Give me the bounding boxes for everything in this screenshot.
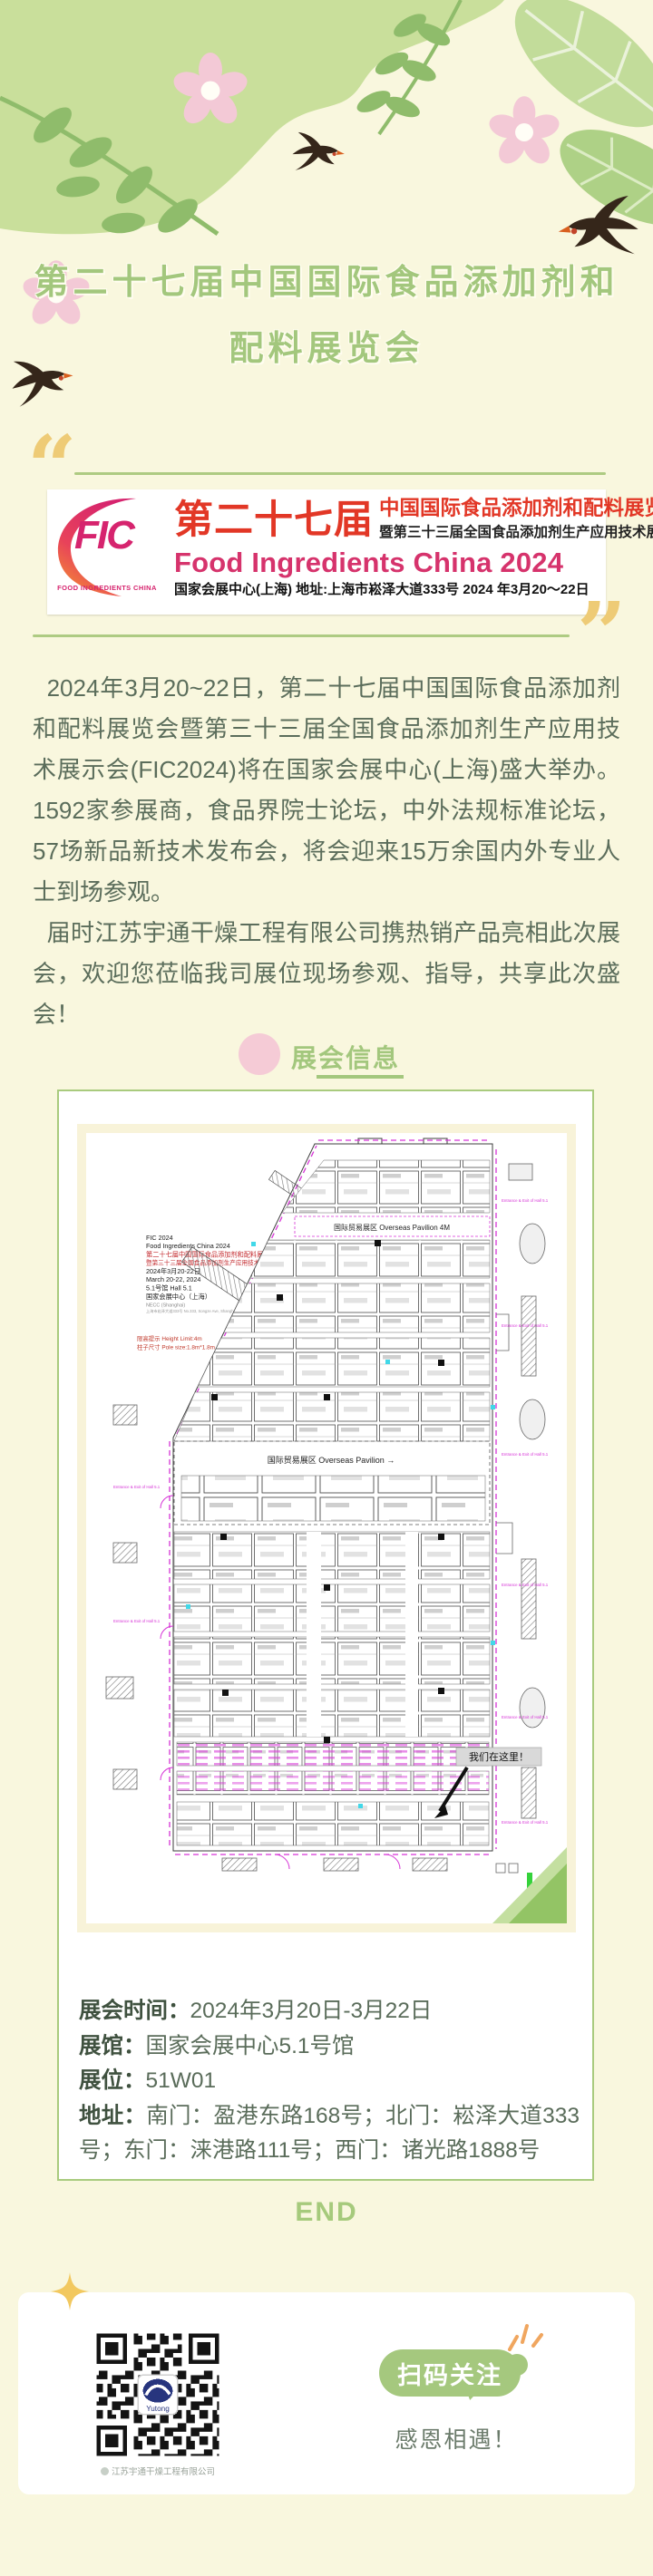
exhibition-details: 展会时间：2024年3月20日-3月22日 展馆：国家会展中心5.1号馆 展位：… (79, 1994, 580, 2169)
section-underline (317, 1075, 404, 1079)
end-label: END (0, 2197, 653, 2228)
detail-label: 展位： (79, 2068, 146, 2093)
page-title-line2: 配料展览会 (0, 320, 653, 370)
follow-button[interactable]: 扫码关注 (379, 2349, 521, 2397)
floor-plan: FIC 2024 Food Ingredients China 2024 第二十… (86, 1133, 567, 1923)
pavilion-label-mid: 国际贸易展区 Overseas Pavilion → (268, 1455, 395, 1465)
divider-line-bottom (33, 634, 570, 637)
entrance-label: Entrance & Exit of Hall 5.1 (113, 1485, 161, 1489)
banner-cn-title: 中国国际食品添加剂和配料展览会 (379, 495, 653, 522)
fic-banner: FIC FOOD INGREDIENTS CHINA 第二十七届 中国国际食品添… (47, 489, 606, 615)
detail-row-hall: 展馆：国家会展中心5.1号馆 (79, 2029, 580, 2065)
detail-value: 2024年3月20日-3月22日 (190, 1999, 433, 2023)
company-mini-logo (101, 2467, 109, 2475)
quote-close-icon: ” (577, 591, 627, 677)
qr-block: Yutong 江苏宇通干燥工程有限公司 (94, 2331, 221, 2477)
left-door-arcs (161, 1496, 173, 1780)
banner-en-title: Food Ingredients China 2024 (174, 546, 653, 580)
emphasis-dashes-icon (504, 2319, 544, 2355)
bottom-externals (222, 1855, 532, 1891)
plan-header-line: 第二十七届中国国际食品添加剂和配料展览会 (146, 1251, 277, 1259)
qr-logo-text: Yutong (146, 2405, 170, 2413)
intro-paragraph-2: 届时江苏宇通干燥工程有限公司携热销产品亮相此次展会，欢迎您莅临我司展位现场参观、… (33, 913, 620, 1035)
banner-session: 第二十七届 (174, 495, 374, 546)
thanks-text: 感恩相遇！ (379, 2422, 533, 2455)
section-dot (239, 1033, 280, 1075)
qr-code: Yutong (94, 2331, 221, 2458)
plan-header-line: March 20-22, 2024 (146, 1275, 200, 1283)
plan-header-line: Food Ingredients China 2024 (146, 1242, 230, 1250)
intro-paragraph-1: 2024年3月20~22日，第二十七届中国国际食品添加剂和配料展览会暨第三十三届… (33, 668, 620, 913)
page-title-line1: 第二十七届中国国际食品添加剂和 (0, 254, 653, 304)
divider-line-top (74, 472, 606, 475)
right-externals (496, 1164, 545, 1818)
plan-height-note: 限高提示 Height Limit:4m (137, 1334, 202, 1342)
detail-label: 展馆： (79, 2034, 146, 2058)
fic-logo: FIC FOOD INGREDIENTS CHINA (47, 489, 163, 615)
plan-header-line: 国家会展中心（上海） (146, 1293, 211, 1301)
detail-label: 地址： (79, 2104, 146, 2128)
detail-label: 展会时间： (79, 1999, 190, 2023)
qr-caption: 江苏宇通干燥工程有限公司 (94, 2465, 221, 2477)
entrance-label: Entrance & Exit of Hall 5.1 (502, 1583, 549, 1587)
plan-header-line: FIC 2024 (146, 1234, 173, 1242)
entrance-label: Entrance & Exit of Hall 5.1 (502, 1452, 549, 1457)
qr-center-logo: Yutong (138, 2375, 177, 2414)
floor-plan-panel: FIC 2024 Food Ingredients China 2024 第二十… (77, 1124, 576, 1932)
detail-value: 51W01 (146, 2068, 217, 2093)
entrance-label: Entrance & Exit of Hall 5.1 (502, 1198, 549, 1203)
swallow-icon-1 (291, 131, 346, 175)
detail-row-booth: 展位：51W01 (79, 2064, 580, 2099)
intro-text: 2024年3月20~22日，第二十七届中国国际食品添加剂和配料展览会暨第三十三届… (33, 668, 620, 1035)
entrance-label: Entrance & Exit of Hall 5.1 (113, 1619, 161, 1623)
left-externals (106, 1405, 137, 1789)
pavilion-label-top: 国际贸易展区 Overseas Pavilion 4M (334, 1223, 450, 1232)
exhibition-info-card: FIC 2024 Food Ingredients China 2024 第二十… (57, 1089, 594, 2181)
corner-triangle (492, 1847, 567, 1923)
detail-value: 南门：盈港东路168号；北门：崧泽大道333号；东门：涞港路111号；西门：诸光… (79, 2104, 580, 2164)
plan-header-line: NECC (Shanghai) (146, 1303, 185, 1309)
plan-header-line: 5.1号馆 Hall 5.1 (146, 1284, 192, 1293)
sparkle-icon (51, 2272, 89, 2310)
detail-row-time: 展会时间：2024年3月20日-3月22日 (79, 1994, 580, 2029)
banner-cn-subtitle: 暨第三十三届全国食品添加剂生产应用技术展示会 (379, 522, 653, 544)
detail-value: 国家会展中心5.1号馆 (146, 2034, 355, 2058)
section-title: 展会信息 (291, 1039, 400, 1075)
flower-2 (486, 96, 562, 169)
fic-logo-text: FIC (74, 513, 133, 558)
detail-row-address: 地址：南门：盈港东路168号；北门：崧泽大道333号；东门：涞港路111号；西门… (79, 2099, 580, 2169)
article-page: 第二十七届中国国际食品添加剂和 配料展览会 “ FIC FOOD INGREDI… (0, 0, 653, 2576)
qr-caption-text: 江苏宇通干燥工程有限公司 (112, 2465, 215, 2477)
plan-pole-note: 柱子尺寸 Pole size:1.8m*1.8m (137, 1343, 215, 1351)
entrance-label: Entrance & Exit of Hall 5.1 (502, 1715, 549, 1719)
fic-logo-subtext: FOOD INGREDIENTS CHINA (51, 584, 163, 592)
entrance-label: Entrance & Exit of Hall 5.1 (502, 1323, 549, 1328)
here-label: 我们在这里！ (469, 1750, 529, 1763)
entrance-label: Entrance & Exit of Hall 5.1 (502, 1820, 549, 1825)
